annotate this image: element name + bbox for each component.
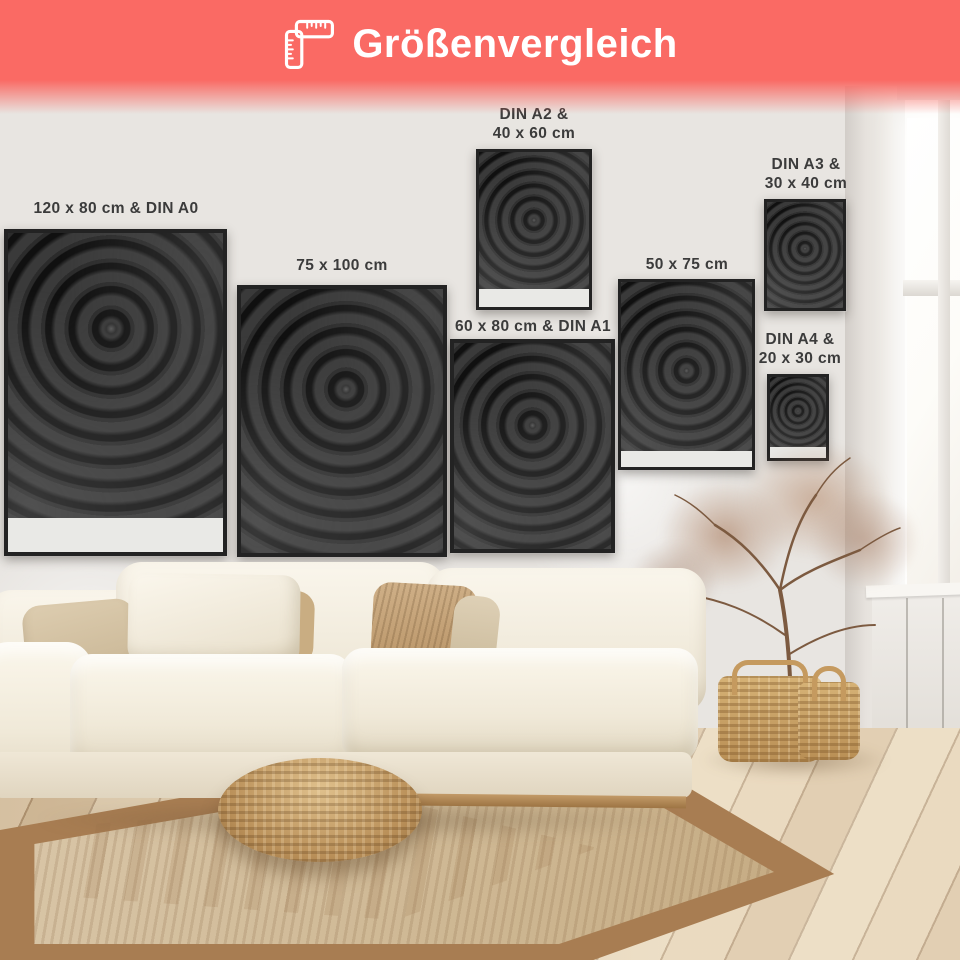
poster-matte bbox=[479, 289, 589, 307]
sofa-seat-cushion bbox=[342, 648, 698, 762]
poster-frame bbox=[476, 149, 592, 310]
wicker-basket bbox=[798, 682, 860, 760]
window-mullion bbox=[903, 280, 960, 296]
poster-size-label: DIN A4 & 20 x 30 cm bbox=[759, 331, 841, 369]
poster-size-label: 75 x 100 cm bbox=[296, 257, 387, 276]
black-rose-artwork bbox=[8, 233, 223, 552]
poster-frame bbox=[4, 229, 227, 556]
page-title: Größenvergleich bbox=[352, 22, 677, 67]
header-banner: Größenvergleich bbox=[0, 0, 960, 116]
poster-matte bbox=[8, 518, 223, 552]
window-mullion bbox=[938, 100, 950, 600]
poster-size-label: 50 x 75 cm bbox=[646, 256, 728, 275]
poster-frame bbox=[764, 199, 846, 311]
basket-handle bbox=[812, 666, 846, 701]
basket-handle bbox=[732, 660, 808, 695]
black-rose-artwork bbox=[767, 202, 843, 308]
poster-size-label: DIN A3 & 30 x 40 cm bbox=[765, 156, 847, 194]
black-rose-artwork bbox=[241, 289, 443, 553]
poster-size-label: 60 x 80 cm & DIN A1 bbox=[455, 318, 611, 337]
size-comparison-mockup: 120 x 80 cm & DIN A0 75 x 100 cm DIN A2 … bbox=[0, 0, 960, 960]
poster-size-label: 120 x 80 cm & DIN A0 bbox=[33, 200, 198, 219]
folding-ruler-icon bbox=[282, 17, 336, 71]
black-rose-artwork bbox=[479, 152, 589, 307]
black-rose-artwork bbox=[454, 343, 611, 549]
wicker-pouf bbox=[218, 758, 422, 862]
poster-frame bbox=[237, 285, 447, 557]
poster-frame bbox=[450, 339, 615, 553]
